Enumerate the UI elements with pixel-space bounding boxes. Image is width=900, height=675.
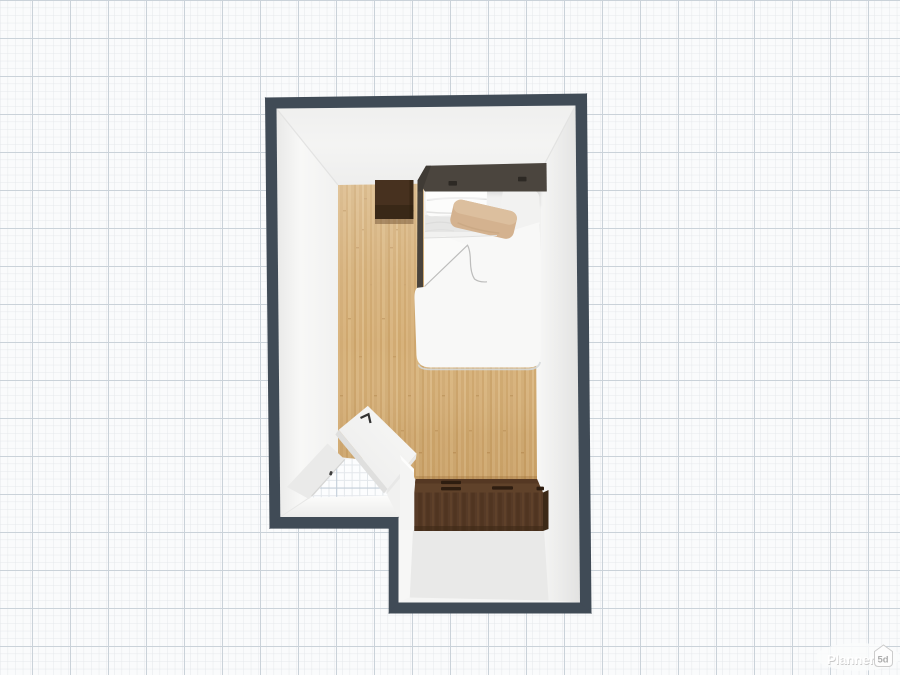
svg-text:5d: 5d xyxy=(878,655,889,666)
svg-text:Planner: Planner xyxy=(827,652,875,667)
